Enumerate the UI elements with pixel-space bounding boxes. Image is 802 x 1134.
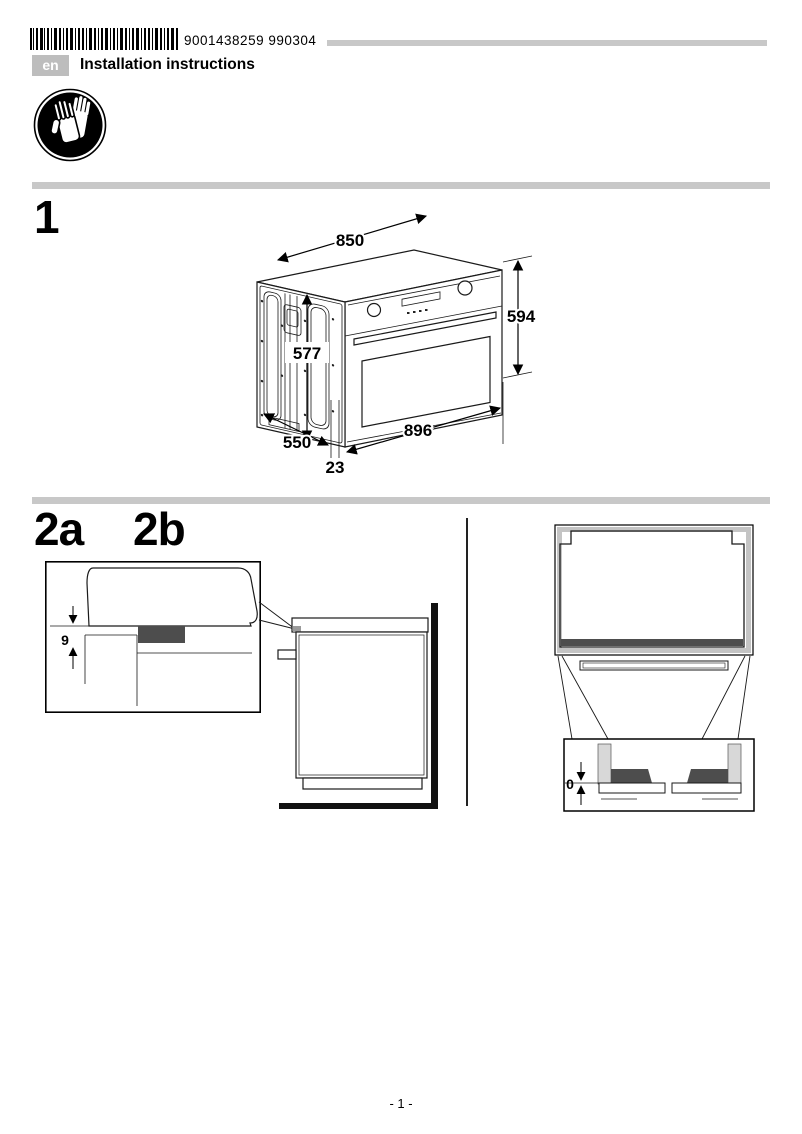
dimension-550: 550	[283, 433, 311, 452]
dimension-594: 594	[507, 307, 536, 326]
column-divider	[466, 518, 468, 806]
protective-gloves-icon	[33, 88, 107, 162]
dimension-896: 896	[404, 421, 432, 440]
figure-oven-dimensions: 577 850 594 896 550 23	[250, 212, 550, 477]
dimension-850: 850	[336, 231, 364, 250]
dimension-9: 9	[61, 632, 69, 648]
step-1-label: 1	[34, 194, 59, 240]
dimension-577: 577	[293, 344, 321, 363]
figure-2a-side-view	[275, 595, 445, 817]
dimension-0: 0	[566, 776, 574, 792]
barcode-number: 9001438259 990304	[184, 33, 316, 48]
step-2a-label: 2a	[34, 506, 83, 552]
manual-page: 9001438259 990304 en Installation instru…	[0, 0, 802, 1134]
dimension-23: 23	[326, 458, 345, 477]
barcode	[30, 28, 180, 50]
page-number: - 1 -	[0, 1096, 802, 1111]
figure-2a-detail: 9	[45, 561, 261, 713]
header-rule	[327, 40, 767, 46]
figure-2b-niche: 0	[548, 515, 763, 820]
step-2b-label: 2b	[133, 506, 185, 552]
language-badge: en	[32, 55, 69, 76]
section-divider	[32, 182, 770, 189]
page-title: Installation instructions	[80, 56, 255, 74]
